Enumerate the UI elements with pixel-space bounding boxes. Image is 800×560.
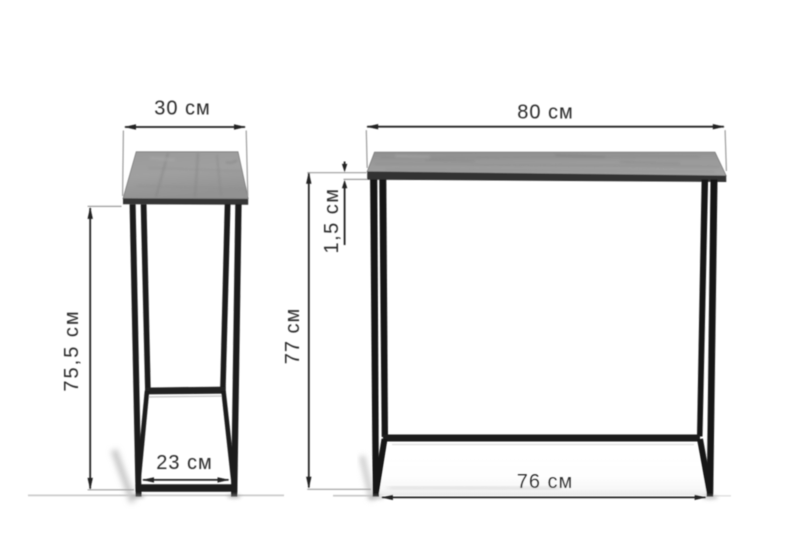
svg-text:1,5 см: 1,5 см bbox=[321, 187, 343, 253]
svg-text:76 см: 76 см bbox=[517, 471, 574, 493]
svg-text:23 см: 23 см bbox=[156, 452, 213, 474]
svg-text:77 см: 77 см bbox=[282, 308, 304, 365]
svg-text:80 см: 80 см bbox=[517, 102, 574, 124]
svg-text:30 см: 30 см bbox=[154, 98, 211, 120]
svg-text:75,5 см: 75,5 см bbox=[61, 309, 83, 391]
